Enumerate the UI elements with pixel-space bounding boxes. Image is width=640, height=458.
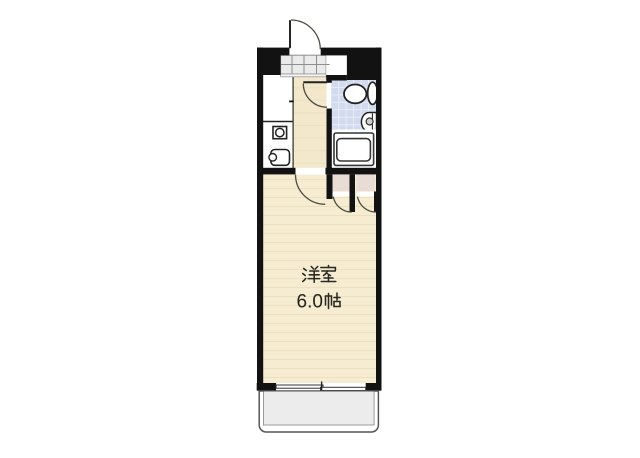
svg-text:6.0: 6.0 bbox=[297, 292, 323, 313]
